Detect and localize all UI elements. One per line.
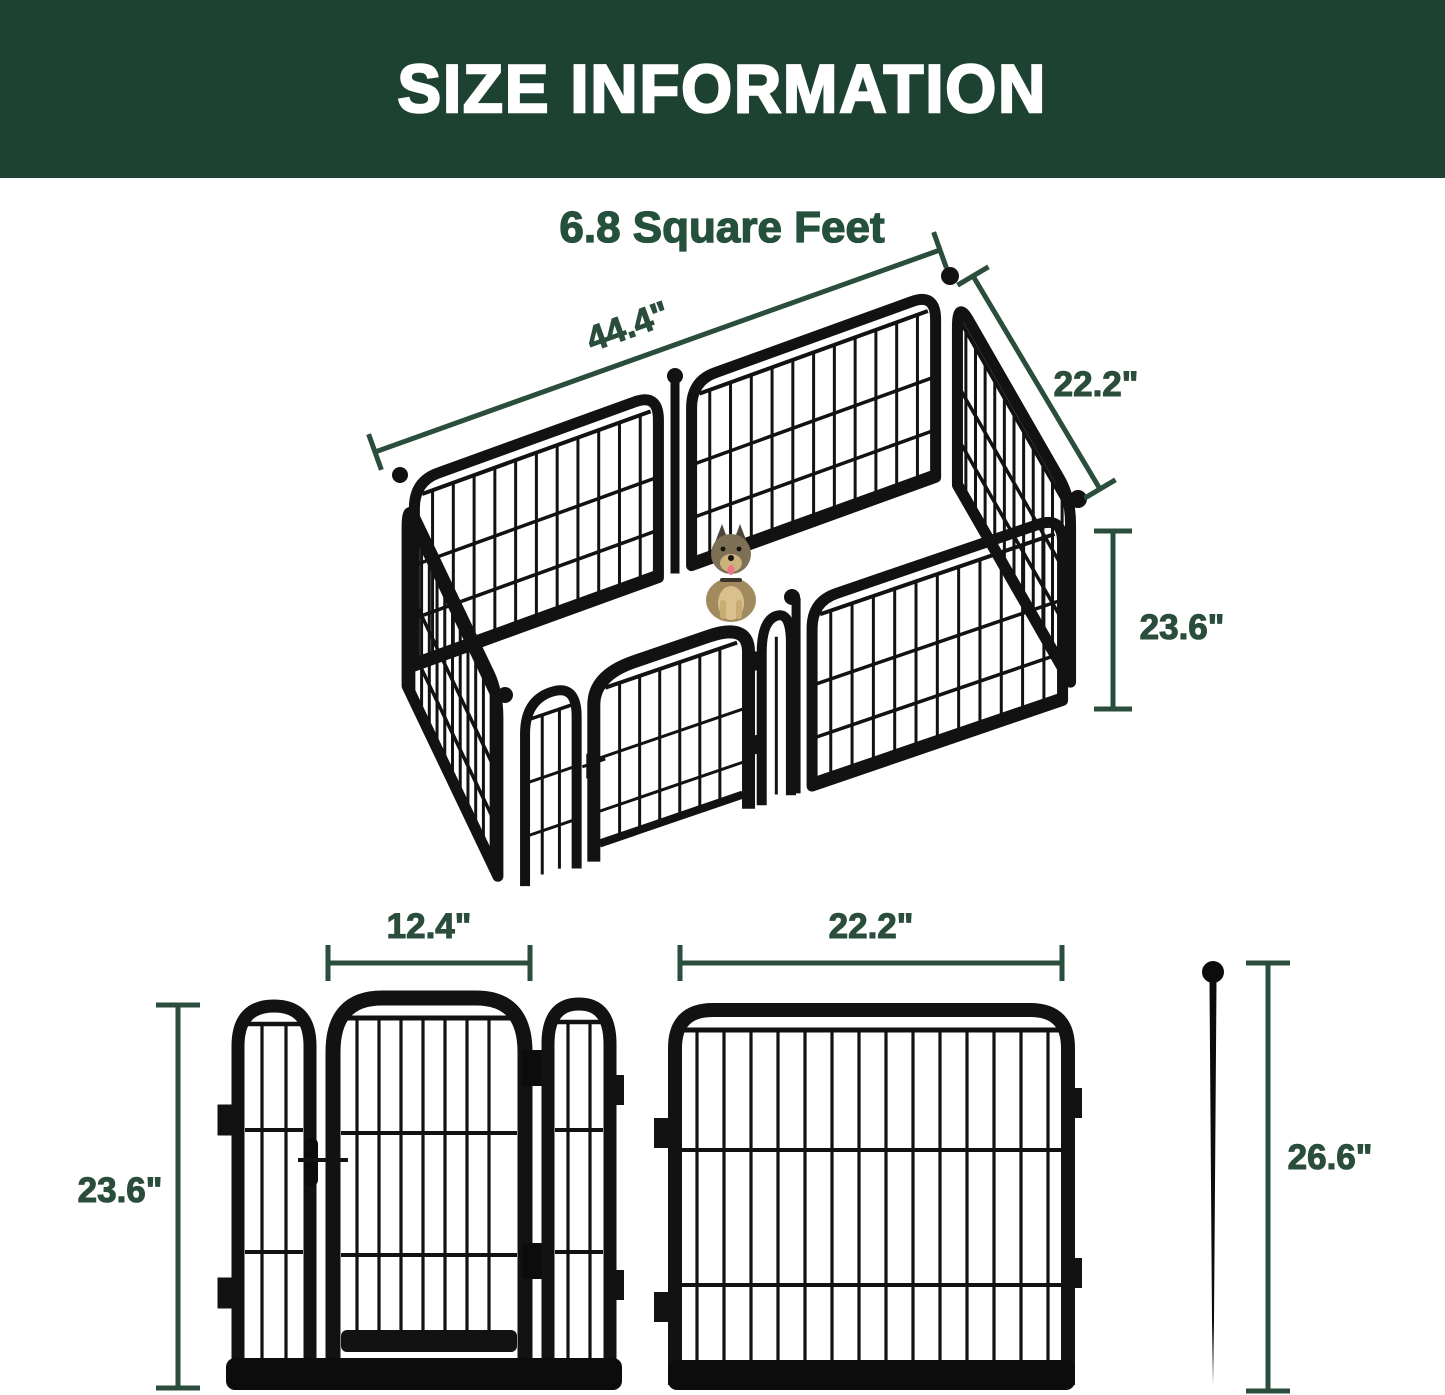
dim-gate-height-label: 23.6" [78, 1171, 163, 1211]
dim-pen-height-label: 23.6" [1140, 608, 1225, 648]
ground-stake-illustration [1202, 961, 1224, 1385]
panel-dimension-lines [680, 945, 1062, 981]
header-banner: SIZE INFORMATION [0, 0, 1445, 178]
dim-panel-width-label: 22.2" [829, 907, 914, 947]
stake-dimension-lines [1246, 963, 1290, 1391]
area-subtitle: 6.8 Square Feet [559, 203, 884, 253]
dim-door-width-label: 12.4" [387, 907, 472, 947]
gate-panel-illustration [218, 998, 624, 1390]
regular-panel-illustration [654, 1010, 1082, 1390]
page-title: SIZE INFORMATION [398, 50, 1048, 128]
dim-stake-height-label: 26.6" [1288, 1138, 1373, 1178]
pen-3d-illustration [392, 267, 1087, 886]
dim-pen-depth-label: 22.2" [1054, 365, 1139, 405]
